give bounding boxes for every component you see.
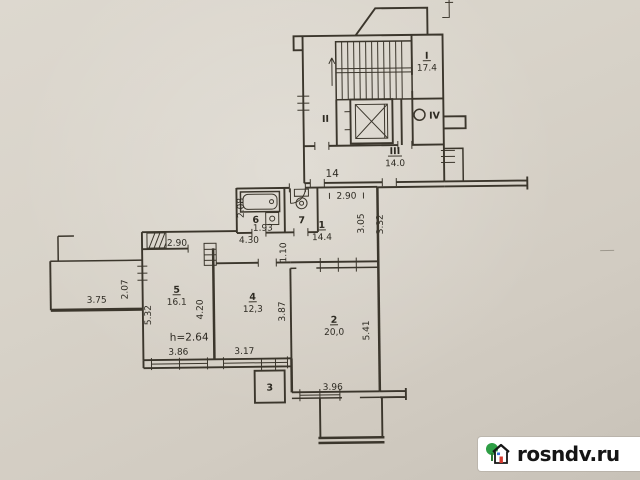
dim-passage-width: 1.10: [279, 242, 289, 262]
dim-room5-top: 2.90: [167, 239, 187, 249]
house-logo-icon: [484, 440, 512, 468]
room-5-number: 5: [173, 285, 180, 296]
room-4: 4 12,3 3.87 3.17: [234, 291, 289, 357]
room-I-area: 17.4: [417, 64, 437, 74]
room-5-area: 16.1: [167, 298, 187, 308]
dim-room5-bottom: 3.86: [168, 348, 188, 358]
room-4-number: 4: [249, 292, 256, 303]
dim-room2-right: 5.41: [362, 320, 372, 340]
floor-plan-photo: I 17.4 II IV III 14.0 14: [0, 0, 640, 480]
dim-bath-depth: 2.08: [236, 198, 246, 218]
dim-room4-right: 3.87: [278, 301, 288, 321]
entrance-canopy: [355, 8, 427, 36]
dim-room5-right: 4.20: [196, 299, 206, 319]
dim-bath-width: 1.93: [253, 224, 273, 234]
wall-pier: [444, 116, 466, 128]
stairwell-block: I 17.4 II IV III 14.0 14: [293, 0, 527, 192]
garbage-chute-icon: [414, 109, 425, 120]
staircase-icon: [329, 41, 413, 100]
room-4-area: 12,3: [243, 305, 263, 315]
bathroom-block: 6 7 2.08 1.93: [236, 187, 318, 237]
watermark-site: rosndv.ru: [517, 442, 620, 466]
dim-hall-depth-left: 3.05: [357, 213, 367, 233]
hallway: 2.90 4.30 1.10 1 14.4 3.05 3.32: [142, 213, 387, 266]
apartment: 6 7 2.08 1.93: [49, 182, 406, 446]
dim-hall-width-top: 2.90: [336, 192, 356, 202]
room-I-number: I: [425, 51, 429, 62]
room-II-number: II: [322, 114, 329, 125]
room-3: 3: [254, 358, 285, 402]
room-1-area: 14.4: [312, 233, 332, 243]
room-5: 5 16.1 5.32 4.20 h=2.64 3.86: [144, 284, 210, 358]
wall-room4-room2: [290, 268, 291, 358]
balcony-bottom: [318, 388, 407, 443]
elevator-icon: [344, 99, 393, 144]
balcony-left: 3.75 2.07: [50, 235, 143, 310]
dim-room5-left: 5.32: [144, 305, 154, 325]
room-III-area: 14.0: [385, 159, 405, 169]
room-2-number: 2: [331, 315, 338, 326]
room-III-number: III: [390, 146, 401, 157]
apartment-number: 14: [325, 168, 339, 180]
dim-corridor-length: 4.30: [239, 236, 259, 246]
riser-pipe: [442, 0, 453, 17]
room-2-area: 20,0: [324, 328, 344, 338]
dim-balcony-left-depth: 2.07: [120, 279, 130, 299]
floor-plan-drawing: I 17.4 II IV III 14.0 14: [0, 0, 640, 480]
dim-room4-bottom: 3.17: [234, 347, 254, 357]
room-7-number: 7: [298, 215, 305, 226]
dim-balcony-left-width: 3.75: [87, 296, 107, 306]
room-1-number: 1: [318, 220, 325, 231]
room-IV-number: IV: [429, 111, 441, 122]
watermark-badge: rosndv.ru: [478, 437, 640, 471]
room-3-number: 3: [266, 383, 273, 394]
ceiling-height: h=2.64: [170, 331, 209, 343]
neighbor-wall-stub: [444, 176, 527, 190]
dim-room2-bottom: 3.96: [323, 383, 343, 393]
wall-room5-room4: [213, 248, 214, 359]
